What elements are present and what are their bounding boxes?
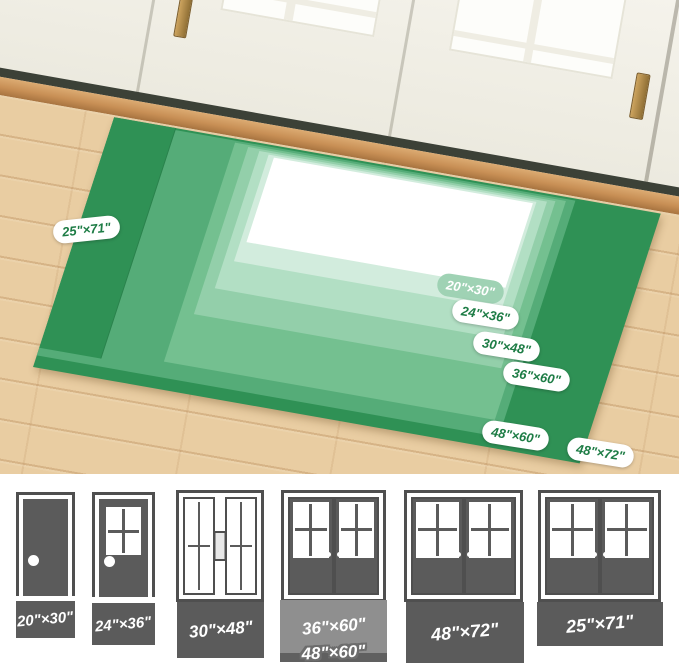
doorknob-icon <box>28 555 39 566</box>
mat-size-text: 24"×36" <box>95 613 153 635</box>
doorway-photo: 25"×71" 20"×30" 24"×36" 30"×48" 36"×60" … <box>0 0 679 474</box>
door-handle-icon <box>214 531 227 561</box>
door-frame-edge <box>644 0 679 182</box>
doorknob-icon <box>326 552 331 557</box>
doorknob-icon <box>337 552 342 557</box>
door-icon-single-window <box>92 492 155 597</box>
door-icon-double-half-glass <box>538 490 661 602</box>
door-window-left <box>220 0 388 37</box>
door-hinge-icon <box>629 72 651 120</box>
door-icon-french-double <box>176 490 264 602</box>
door-size-comparison-chart: 20"×30" 24"×36" 30"×48" <box>0 474 679 671</box>
mat-size-text: 48"×72" <box>430 619 499 646</box>
mat-size-text: 36"×60" <box>301 614 366 639</box>
door-leaf <box>225 497 257 595</box>
door-leaf <box>334 497 380 595</box>
doorknob-icon <box>592 552 597 557</box>
door-leaf <box>545 497 600 595</box>
mat-swatch-25x71: 25"×71" <box>537 602 663 646</box>
doorknob-icon <box>603 552 608 557</box>
mat-size-text: 30"×48" <box>188 617 253 642</box>
door-slab <box>23 499 68 596</box>
mat-size-text: 20"×30" <box>17 609 75 631</box>
doorknob-icon <box>456 552 461 557</box>
door-seam <box>136 0 174 92</box>
door-hinge-icon <box>173 0 193 39</box>
doorknob-icon <box>104 556 115 567</box>
door-slab <box>99 499 148 597</box>
door-leaf <box>411 497 464 595</box>
door-leaf <box>600 497 655 595</box>
window-mullion <box>226 0 377 18</box>
mat-swatch-48x72: 48"×72" <box>406 602 524 663</box>
door-window <box>106 507 141 555</box>
door-seam <box>388 0 426 137</box>
door-leaf <box>464 497 517 595</box>
mat-size-text: 25"×71" <box>565 611 634 638</box>
doorknob-icon <box>467 552 472 557</box>
mat-swatch-20x30: 20"×30" <box>16 601 75 638</box>
door-icon-single-solid <box>16 492 75 596</box>
door-icon-double-half-glass <box>404 490 523 602</box>
product-size-guide-image: 25"×71" 20"×30" 24"×36" 30"×48" 36"×60" … <box>0 0 679 671</box>
door-window-right <box>449 0 629 79</box>
door-leaf <box>183 497 215 595</box>
mat-swatch-24x36: 24"×36" <box>92 603 155 645</box>
window-mullion <box>523 0 547 63</box>
mat-swatch-30x48: 30"×48" <box>177 602 264 658</box>
door-leaf <box>288 497 334 595</box>
door-icon-double-half-glass <box>281 490 386 602</box>
